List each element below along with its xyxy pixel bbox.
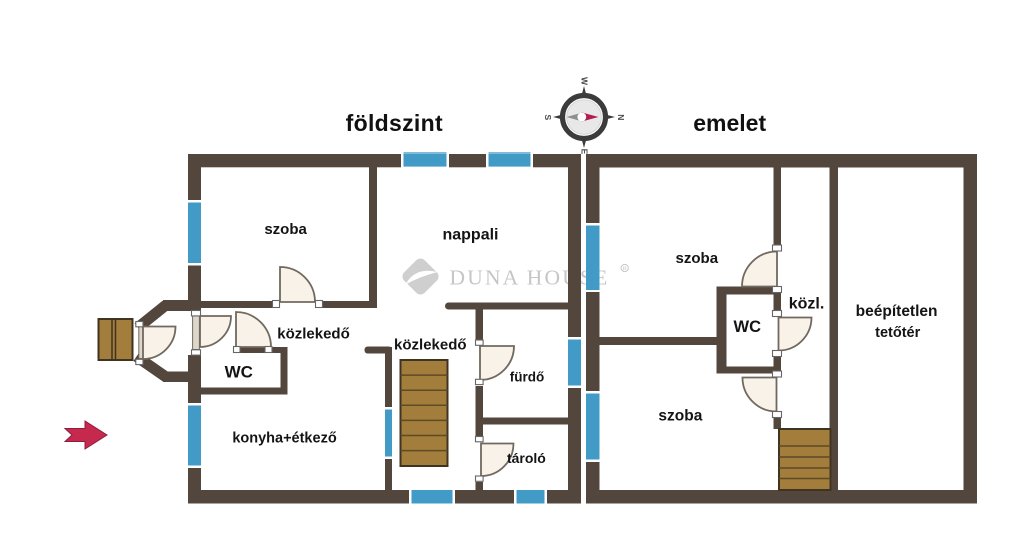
svg-text:DUNA HOUSE: DUNA HOUSE: [450, 266, 610, 290]
svg-text:közl.: közl.: [789, 296, 825, 313]
svg-text:szoba: szoba: [264, 221, 307, 238]
svg-text:emelet: emelet: [693, 110, 766, 136]
svg-text:nappali: nappali: [442, 227, 498, 244]
svg-text:földszint: földszint: [346, 110, 443, 136]
svg-text:N: N: [616, 114, 626, 120]
svg-text:szoba: szoba: [658, 408, 702, 425]
svg-text:E: E: [579, 149, 589, 155]
svg-text:WC: WC: [225, 363, 253, 382]
svg-text:konyha+étkező: konyha+étkező: [232, 431, 337, 447]
svg-text:beépítetlen: beépítetlen: [856, 303, 938, 320]
svg-text:tároló: tároló: [507, 450, 546, 466]
svg-text:W: W: [579, 77, 589, 86]
svg-text:közlekedő: közlekedő: [394, 337, 467, 354]
svg-text:fürdő: fürdő: [510, 370, 545, 385]
svg-text:S: S: [543, 114, 553, 120]
svg-text:szoba: szoba: [676, 250, 719, 267]
svg-text:R: R: [623, 266, 627, 272]
svg-text:közlekedő: közlekedő: [277, 326, 350, 343]
svg-text:WC: WC: [734, 318, 762, 336]
svg-text:tetőtér: tetőtér: [875, 325, 920, 341]
